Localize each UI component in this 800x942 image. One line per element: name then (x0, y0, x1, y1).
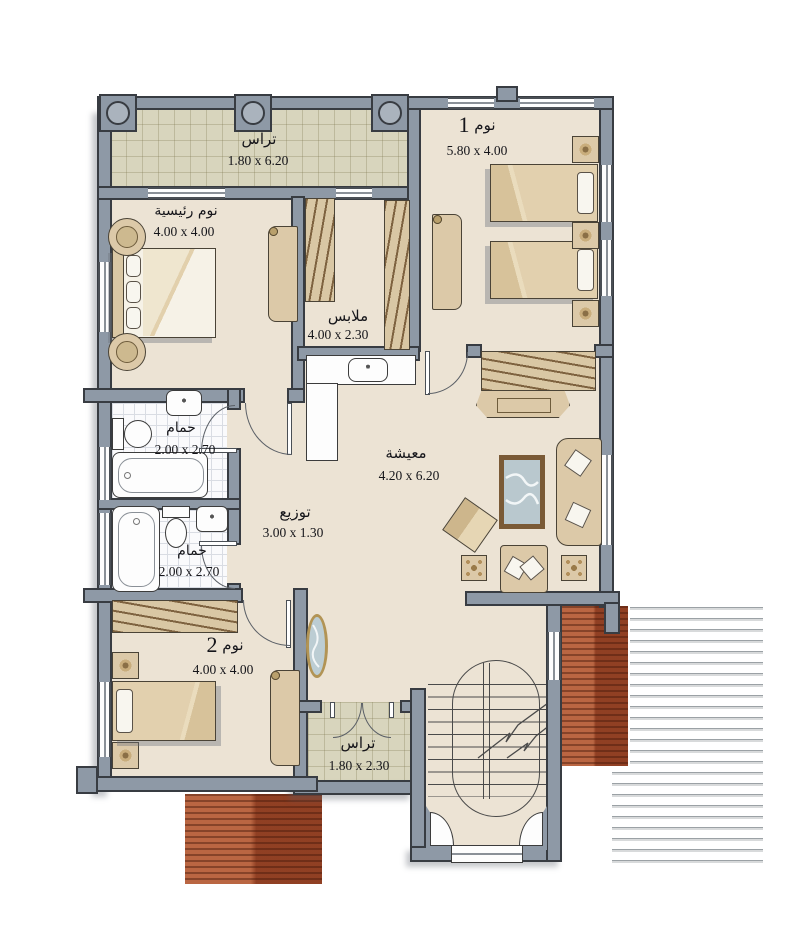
closet-label: ملابس (308, 309, 388, 325)
master-bed-pillow-1 (126, 255, 141, 277)
window-bedroom2-west (98, 682, 111, 757)
wall-right-stub (604, 602, 620, 634)
tv-cabinet-inner (497, 398, 551, 413)
closet-wardrobe-left (305, 198, 335, 302)
living-dims: 4.20 x 6.20 (359, 468, 459, 484)
wall-terrace-b-north-l (298, 700, 322, 713)
tv-cabinet (476, 390, 570, 418)
bedroom2-bed-pillow (116, 689, 133, 733)
terrace-column-3 (371, 94, 409, 132)
bedroom1-bed-1 (490, 164, 598, 222)
terrace-top-label: تراس (219, 132, 299, 148)
master-dims: 4.00 x 4.00 (134, 224, 234, 240)
wall-bedroom1-south-l (466, 344, 482, 358)
bedroom2-dims: 4.00 x 4.00 (173, 662, 273, 678)
floor-plan: تراس 1.80 x 6.20 نوم 1 5.80 x 4.00 نوم ر… (0, 0, 800, 942)
bedroom2-label: نوم 2 (175, 634, 275, 656)
living-label: معيشة (371, 446, 441, 462)
window-bath1-west (98, 447, 111, 500)
bedroom2-bed (112, 681, 216, 741)
bedroom1-bed2-fold (491, 242, 555, 298)
bedroom1-label: نوم 1 (427, 114, 527, 136)
bath1-sink (166, 390, 202, 416)
hall-counter-side (306, 383, 338, 461)
bath2-dims: 2.00 x 2.70 (139, 564, 239, 580)
wall-bedroom2-south (90, 776, 318, 792)
bath2-sink (196, 506, 228, 532)
master-bed-pillow-2 (126, 281, 141, 303)
bedroom2-number: 2 (207, 632, 218, 657)
entry-threshold (451, 845, 523, 863)
wall-master-south-right (287, 388, 305, 403)
master-bed-headboard (113, 249, 124, 337)
armchair-pillow-2 (519, 555, 544, 580)
master-bed (112, 248, 216, 338)
bath1-dims: 2.00 x 2.70 (135, 442, 235, 458)
bath2-toilet-tank (162, 506, 190, 518)
bath1-bathtub-drain (124, 472, 131, 479)
master-bed-pillow-3 (126, 307, 141, 329)
master-nightstand-bottom (108, 333, 146, 371)
wall-bath-east-b (227, 448, 241, 545)
bedroom1-bed2-pillow (577, 249, 594, 291)
sofa (556, 438, 602, 546)
bath1-label: حمام (146, 421, 216, 436)
wall-living-south (465, 591, 620, 606)
bedroom2-dresser (270, 670, 300, 766)
terrace-column-2 (234, 94, 272, 132)
window-bedroom1-north-a (448, 97, 494, 109)
bedroom1-bed1-pillow (577, 172, 594, 214)
terrace-bottom-label: تراس (323, 736, 393, 752)
master-bed-blanket-fold (143, 249, 215, 336)
bedroom2-wardrobe (112, 600, 238, 633)
bath2-bathtub-drain (133, 518, 140, 525)
pergola-slats-upper (630, 607, 763, 767)
bedroom1-dresser (432, 214, 462, 310)
master-dresser (268, 226, 298, 322)
wall-top-stub (496, 86, 518, 102)
terrace-bottom-dims: 1.80 x 2.30 (309, 758, 409, 774)
side-table-right (561, 555, 587, 581)
bedroom1-dims: 5.80 x 4.00 (427, 143, 527, 159)
bedroom1-wardrobe (481, 351, 596, 391)
wall-bedroom1-south-r (594, 344, 614, 358)
sofa-pillow-2 (565, 502, 592, 529)
pergola-slats-lower (612, 772, 763, 866)
bedroom2-nightstand-1 (112, 652, 139, 679)
window-bedroom1-east-b (600, 240, 613, 296)
hall-sink (348, 358, 388, 382)
window-bath2-west (98, 513, 111, 585)
master-label: نوم رئيسية (146, 204, 226, 219)
window-bedroom1-north-b (520, 97, 594, 109)
side-table-left (461, 555, 487, 581)
bath2-label: حمام (157, 544, 227, 559)
armchair (500, 545, 548, 593)
window-master-west (98, 262, 111, 332)
hall-mirror-oval (306, 614, 328, 678)
wall-stair-west (410, 688, 426, 862)
bedroom1-bed-2 (490, 241, 598, 299)
window-closet-terrace (336, 187, 372, 199)
terrace-top-dims: 1.80 x 6.20 (208, 153, 308, 169)
bedroom1-nightstand-3 (572, 300, 599, 327)
bedroom1-number: 1 (459, 112, 470, 137)
bedroom1-nightstand-1 (572, 136, 599, 163)
mirror-coffee-table (499, 455, 545, 529)
bedroom1-bed1-fold (491, 165, 555, 221)
window-bedroom1-east-a (600, 165, 613, 222)
terrace-column-1 (99, 94, 137, 132)
closet-dims: 4.00 x 2.30 (288, 327, 388, 343)
bath1-bathtub (112, 452, 208, 498)
bedroom2-nightstand-2 (112, 742, 139, 769)
wall-corner-block-sw (76, 766, 98, 794)
hall-dims: 3.00 x 1.30 (243, 525, 343, 541)
hall-label: توزيع (260, 505, 330, 521)
bath1-toilet-tank (112, 418, 124, 450)
wood-deck-bottom-left (185, 794, 322, 884)
window-master-terrace (148, 187, 225, 199)
wall-master-south (83, 388, 245, 403)
sofa-pillow-1 (564, 449, 592, 477)
window-stairwell-east (547, 632, 561, 680)
bedroom1-nightstand-2 (572, 222, 599, 249)
bedroom2-bed-fold (154, 682, 215, 740)
